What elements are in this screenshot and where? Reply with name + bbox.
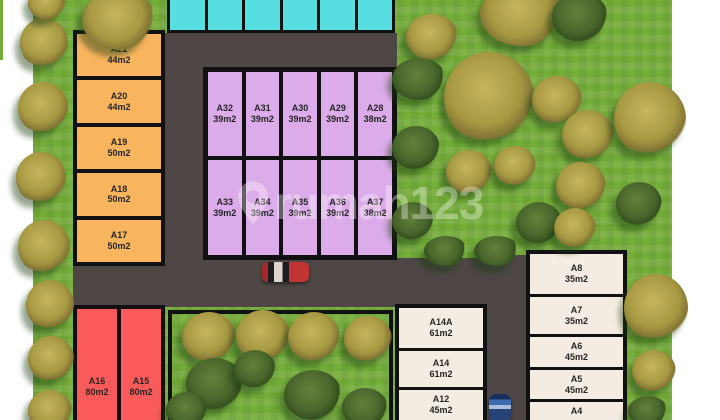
blue-car: [489, 394, 511, 420]
lot-area: 39m2: [326, 114, 349, 125]
lot-id: A15: [133, 376, 150, 387]
lot-area: 35m2: [565, 274, 588, 285]
grass-edge-sliver: [0, 0, 3, 60]
tree: [628, 396, 668, 420]
lot-id: A19: [111, 137, 128, 148]
teal-lot: [320, 0, 355, 30]
lot-id: A12: [433, 394, 450, 405]
lot-a33: A33 39m2: [208, 160, 242, 255]
lot-a17: A17 50m2: [77, 220, 161, 262]
lot-a19: A19 50m2: [77, 127, 161, 169]
lot-area: 80m2: [129, 387, 152, 398]
tree: [424, 236, 468, 266]
site-plan-map: A21 44m2 A20 44m2 A19 50m2 A18 50m2 A17 …: [0, 0, 720, 420]
teal-lot: [170, 0, 205, 30]
tree: [182, 312, 236, 362]
tree: [406, 14, 458, 60]
lot-id: A7: [571, 305, 583, 316]
lot-area: 39m2: [288, 114, 311, 125]
purple-lot-block: A32 39m2 A31 39m2 A30 39m2 A29 39m2 A28 …: [203, 67, 397, 260]
lot-area: 39m2: [251, 114, 274, 125]
tree: [18, 220, 70, 274]
lot-id: A28: [367, 103, 384, 114]
lot-area: 39m2: [213, 208, 236, 219]
teal-lot: [245, 0, 280, 30]
tree: [26, 280, 74, 330]
lot-id: A18: [111, 184, 128, 195]
lot-id: A20: [111, 91, 128, 102]
lot-area: 45m2: [565, 352, 588, 363]
lot-a29: A29 39m2: [321, 72, 355, 156]
red-lot-pair: A16 80m2 A15 80m2: [73, 305, 165, 420]
lot-a14: A14 61m2: [399, 351, 483, 387]
lot-a20: A20 44m2: [77, 80, 161, 122]
lot-a4: A4: [530, 402, 623, 420]
tree: [234, 350, 276, 388]
lot-area: 50m2: [107, 241, 130, 252]
lot-a32: A32 39m2: [208, 72, 242, 156]
lot-a18: A18 50m2: [77, 173, 161, 215]
watermark: rumah123: [238, 176, 483, 230]
tree: [624, 274, 688, 342]
lot-id: A17: [111, 230, 128, 241]
tree: [392, 126, 440, 170]
tree: [444, 52, 534, 144]
lot-area: 44m2: [107, 102, 130, 113]
tree: [562, 110, 614, 160]
tree: [284, 370, 342, 420]
tree: [166, 392, 208, 420]
lot-a7: A7 35m2: [530, 297, 623, 334]
right-lot-column: A8 35m2 A7 35m2 A6 45m2 A5 45m2 A4: [526, 250, 627, 420]
teal-lot: [208, 0, 243, 30]
red-car: [262, 262, 309, 282]
lot-area: 50m2: [107, 148, 130, 159]
map-pin-icon: [238, 178, 268, 228]
lot-area: 80m2: [85, 387, 108, 398]
lot-a15: A15 80m2: [121, 309, 161, 420]
lot-area: 44m2: [107, 55, 130, 66]
lot-a14a: A14A 61m2: [399, 308, 483, 348]
tree: [392, 58, 446, 100]
tree: [18, 82, 68, 134]
tree: [632, 350, 676, 392]
lot-a6: A6 45m2: [530, 337, 623, 367]
lot-id: A32: [217, 103, 234, 114]
teal-lot-row: [167, 0, 395, 33]
lot-area: 61m2: [429, 369, 452, 380]
lot-id: A14: [433, 358, 450, 369]
tree: [342, 388, 388, 420]
tree: [474, 236, 520, 266]
orange-lot-column: A21 44m2 A20 44m2 A19 50m2 A18 50m2 A17 …: [73, 30, 165, 266]
lot-area: 35m2: [565, 316, 588, 327]
lot-id: A8: [571, 263, 583, 274]
teal-lot: [358, 0, 393, 30]
tree: [614, 82, 686, 156]
lot-id: A30: [292, 103, 309, 114]
tree: [556, 162, 606, 210]
bottom-center-lot-block: A14A 61m2 A14 61m2 A12 45m2: [395, 304, 487, 420]
tree: [554, 208, 596, 248]
watermark-text: rumah123: [274, 176, 483, 230]
lot-area: 38m2: [364, 114, 387, 125]
tree: [28, 336, 74, 382]
lot-a28: A28 38m2: [358, 72, 392, 156]
tree: [494, 146, 536, 186]
lot-id: A33: [217, 197, 234, 208]
lot-area: 39m2: [213, 114, 236, 125]
lot-id: A16: [89, 376, 106, 387]
tree: [20, 18, 68, 68]
tree: [16, 152, 66, 204]
lot-id: A31: [254, 103, 271, 114]
lot-a8: A8 35m2: [530, 254, 623, 294]
lot-a30: A30 39m2: [283, 72, 317, 156]
lot-id: A4: [571, 406, 583, 417]
lot-a12: A12 45m2: [399, 390, 483, 420]
lot-id: A14A: [429, 317, 452, 328]
lot-id: A5: [571, 374, 583, 385]
lot-a5: A5 45m2: [530, 370, 623, 399]
lot-area: 50m2: [107, 194, 130, 205]
lot-area: 61m2: [429, 328, 452, 339]
tree: [344, 316, 392, 362]
teal-lot: [283, 0, 318, 30]
lot-area: 45m2: [429, 405, 452, 416]
tree: [616, 182, 662, 226]
lot-id: A6: [571, 341, 583, 352]
tree: [288, 312, 340, 362]
lot-area: 45m2: [565, 385, 588, 396]
lot-a16: A16 80m2: [77, 309, 117, 420]
lot-a31: A31 39m2: [246, 72, 280, 156]
lot-id: A29: [329, 103, 346, 114]
